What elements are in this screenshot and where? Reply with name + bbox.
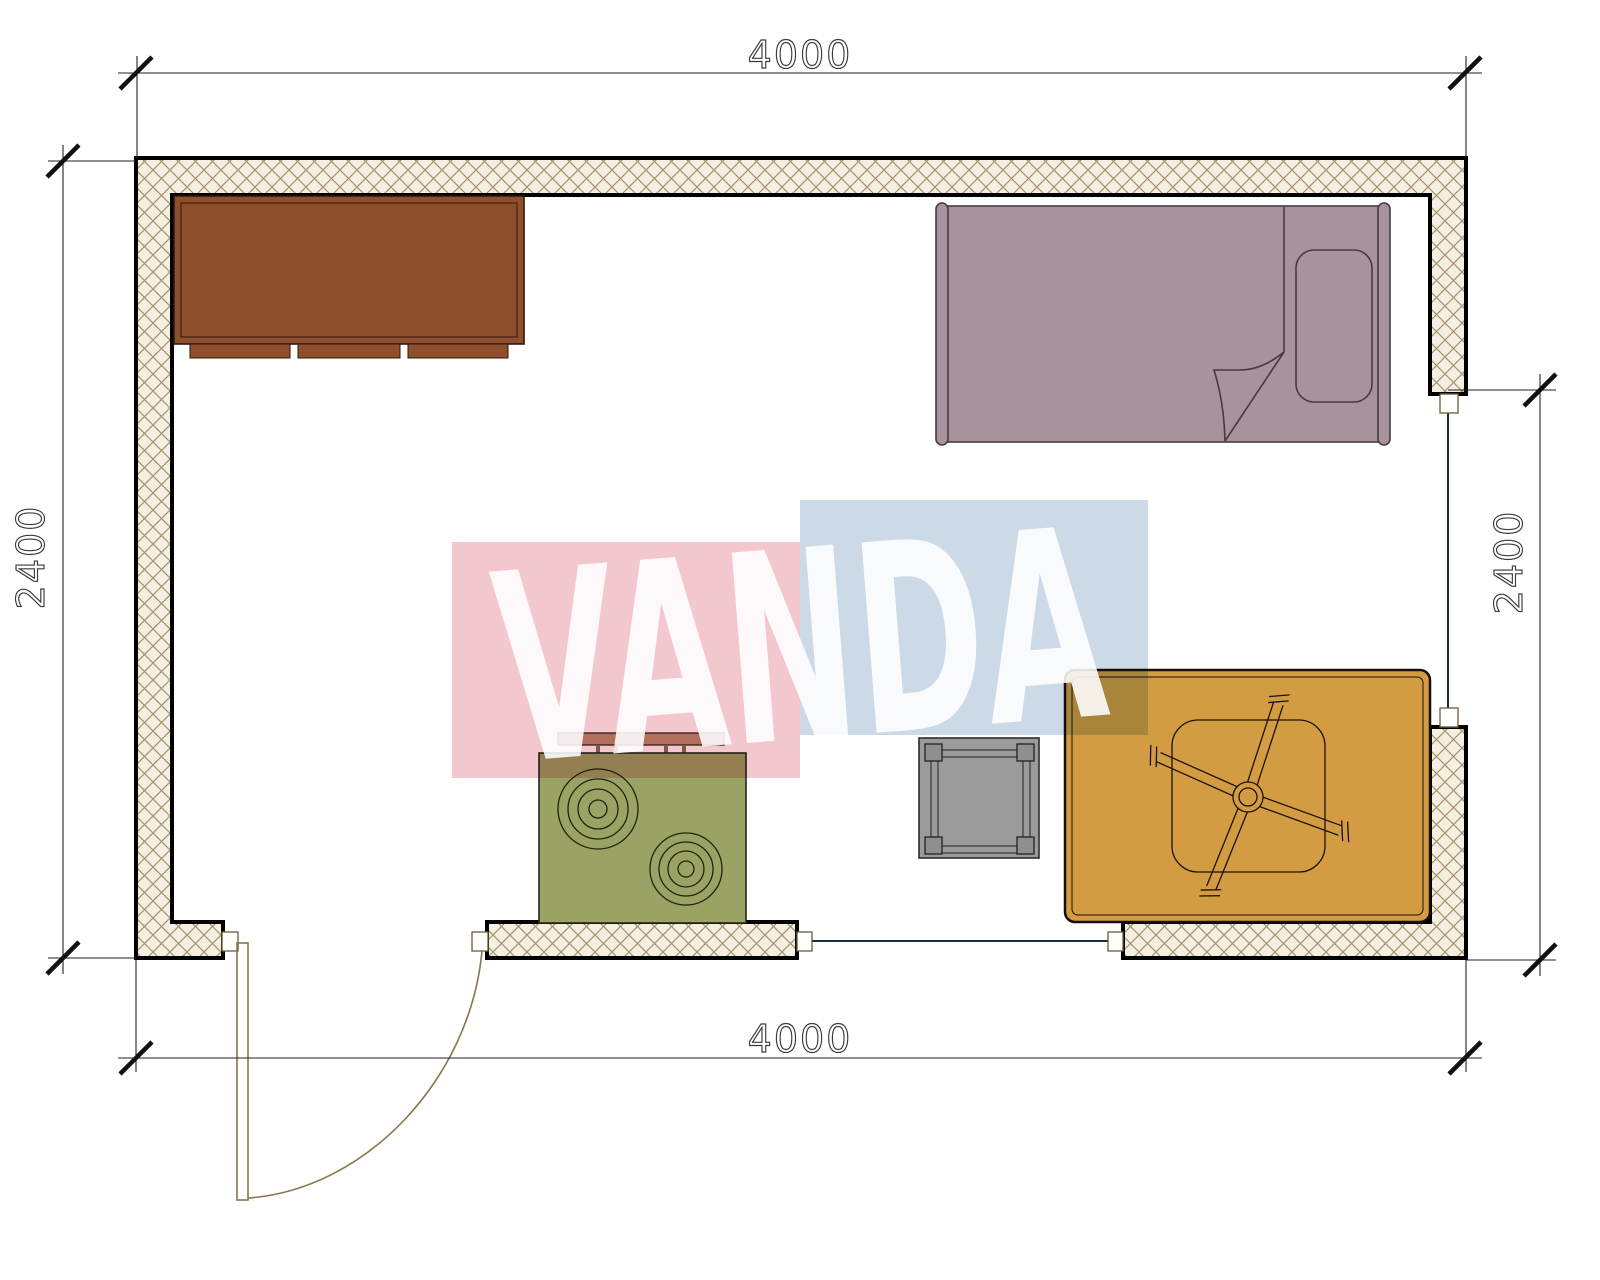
- door-swing-arc: [248, 951, 482, 1198]
- window-jamb: [1108, 932, 1123, 951]
- watermark: VANDA: [452, 472, 1148, 824]
- window-bottom: [797, 932, 1123, 951]
- cabinet: [174, 196, 524, 358]
- dimension-label-right: 2400: [1487, 510, 1531, 615]
- dimension-left: 2400: [9, 145, 136, 974]
- window-right: [1440, 394, 1458, 727]
- bed-mattress: [945, 206, 1381, 442]
- cabinet-drawer: [298, 344, 400, 358]
- window-jamb: [1440, 394, 1458, 413]
- cabinet-drawer: [408, 344, 508, 358]
- dimension-bottom: 4000: [118, 958, 1482, 1074]
- dimension-label-bottom: 4000: [748, 1017, 853, 1061]
- dimension-label-left: 2400: [9, 505, 53, 610]
- bed-rail-left: [936, 203, 948, 445]
- window-jamb: [797, 932, 812, 951]
- floor-plan-drawing: 4000 4000 2400 2400: [0, 0, 1600, 1280]
- cabinet-drawer: [190, 344, 290, 358]
- dimension-top: 4000: [118, 33, 1482, 158]
- dimension-label-top: 4000: [748, 33, 853, 77]
- watermark-text: VANDA: [484, 472, 1117, 824]
- bed: [936, 203, 1390, 445]
- cabinet-body: [174, 196, 524, 344]
- bed-rail-right: [1378, 203, 1390, 445]
- door-strike-jamb: [472, 932, 488, 951]
- door-leaf: [237, 943, 248, 1200]
- wall-bottom-middle: [487, 922, 797, 958]
- floor-plan-page: 4000 4000 2400 2400: [0, 0, 1600, 1280]
- door-hinge-jamb: [222, 932, 238, 951]
- window-jamb: [1440, 708, 1458, 727]
- door: [222, 932, 488, 1200]
